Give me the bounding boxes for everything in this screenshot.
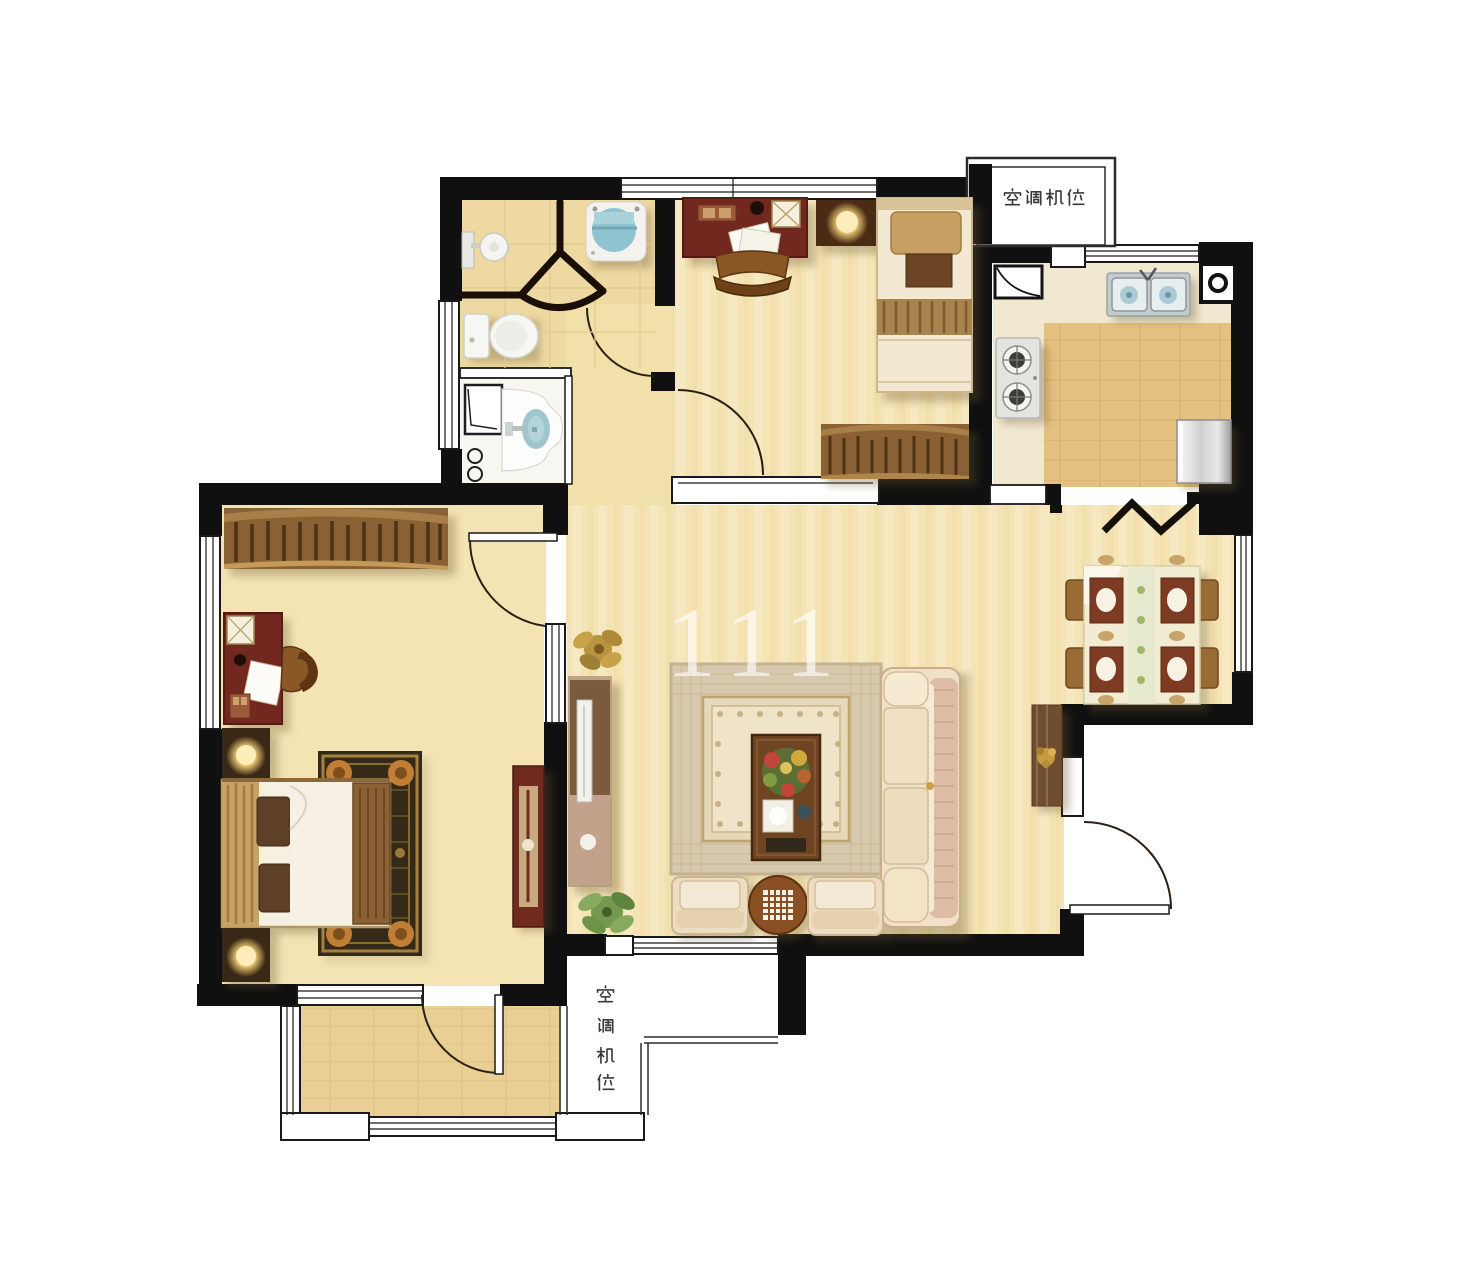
- svg-text:111: 111: [666, 587, 848, 698]
